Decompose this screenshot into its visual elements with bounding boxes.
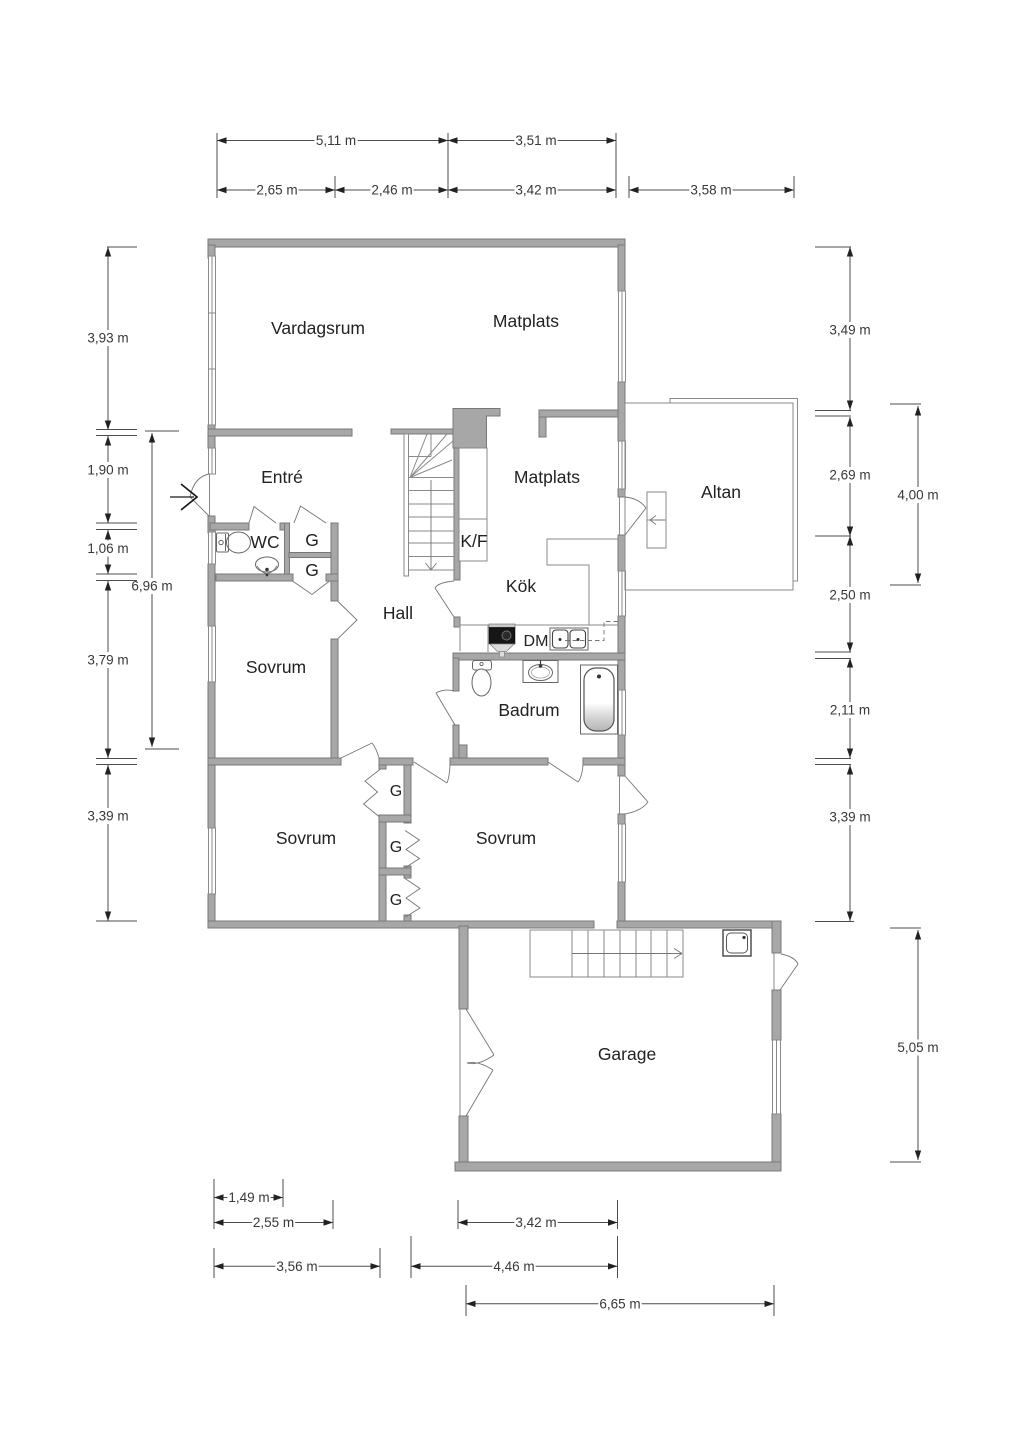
svg-text:Kök: Kök [506, 576, 536, 596]
svg-text:1,90 m: 1,90 m [87, 463, 128, 478]
svg-text:2,65 m: 2,65 m [256, 183, 297, 198]
svg-text:3,49 m: 3,49 m [829, 323, 870, 338]
svg-text:3,79 m: 3,79 m [87, 653, 128, 668]
svg-text:2,11 m: 2,11 m [830, 703, 870, 718]
svg-text:2,50 m: 2,50 m [829, 588, 870, 603]
svg-text:Altan: Altan [701, 482, 741, 502]
svg-text:2,69 m: 2,69 m [829, 468, 870, 483]
svg-text:Entré: Entré [261, 467, 303, 487]
svg-text:3,51 m: 3,51 m [515, 133, 556, 148]
svg-text:4,00 m: 4,00 m [897, 488, 938, 503]
svg-text:Badrum: Badrum [498, 700, 559, 720]
svg-text:G: G [305, 530, 319, 550]
svg-text:Vardagsrum: Vardagsrum [271, 318, 365, 338]
svg-text:Sovrum: Sovrum [476, 828, 536, 848]
svg-text:1,49 m: 1,49 m [228, 1190, 269, 1205]
svg-text:3,93 m: 3,93 m [87, 331, 128, 346]
svg-text:G: G [390, 892, 402, 909]
svg-text:Hall: Hall [383, 603, 413, 623]
svg-text:Sovrum: Sovrum [276, 828, 336, 848]
svg-text:Matplats: Matplats [493, 311, 559, 331]
svg-text:3,58 m: 3,58 m [690, 183, 731, 198]
svg-text:3,39 m: 3,39 m [829, 810, 870, 825]
svg-text:G: G [390, 783, 402, 800]
svg-text:2,55 m: 2,55 m [253, 1215, 294, 1230]
svg-text:5,05 m: 5,05 m [897, 1040, 938, 1055]
svg-text:G: G [305, 560, 319, 580]
svg-text:3,42 m: 3,42 m [515, 183, 556, 198]
svg-text:DM: DM [524, 633, 549, 650]
svg-text:3,39 m: 3,39 m [87, 809, 128, 824]
svg-text:Matplats: Matplats [514, 467, 580, 487]
svg-text:1,06 m: 1,06 m [87, 541, 128, 556]
svg-text:3,56 m: 3,56 m [276, 1259, 317, 1274]
svg-text:Garage: Garage [598, 1044, 656, 1064]
svg-text:2,46 m: 2,46 m [371, 183, 412, 198]
svg-text:6,96 m: 6,96 m [131, 579, 172, 594]
svg-text:4,46 m: 4,46 m [493, 1259, 534, 1274]
svg-text:Sovrum: Sovrum [246, 657, 306, 677]
svg-text:K/F: K/F [460, 531, 487, 551]
svg-text:3,42 m: 3,42 m [515, 1215, 556, 1230]
svg-text:5,11 m: 5,11 m [316, 133, 356, 148]
svg-text:G: G [390, 839, 402, 856]
svg-text:WC: WC [250, 532, 279, 552]
svg-text:6,65 m: 6,65 m [599, 1297, 640, 1312]
